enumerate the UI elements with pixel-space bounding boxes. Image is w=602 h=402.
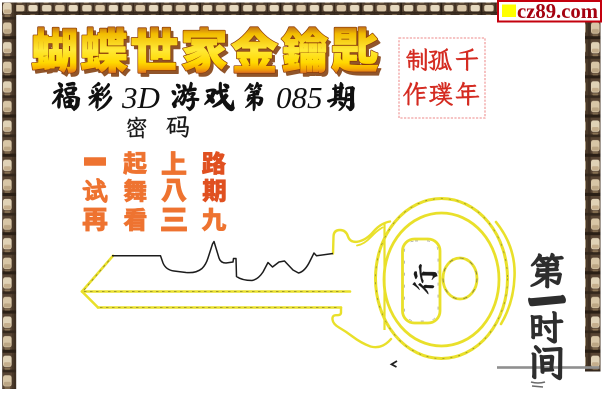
svg-text:3D: 3D (121, 80, 160, 115)
svg-text:085: 085 (276, 80, 323, 115)
svg-text:cz89.com: cz89.com (517, 0, 598, 23)
